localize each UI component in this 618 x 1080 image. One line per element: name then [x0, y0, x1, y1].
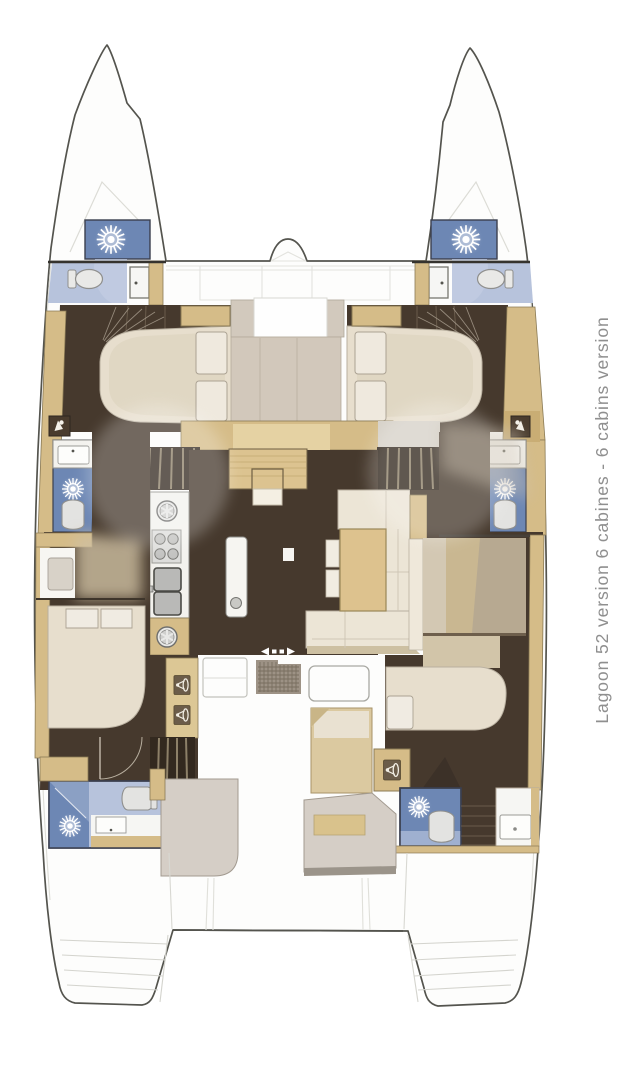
svg-text:Lagoon 52 version 6 cabines -: Lagoon 52 version 6 cabines - 6 cabins v…	[592, 316, 612, 723]
